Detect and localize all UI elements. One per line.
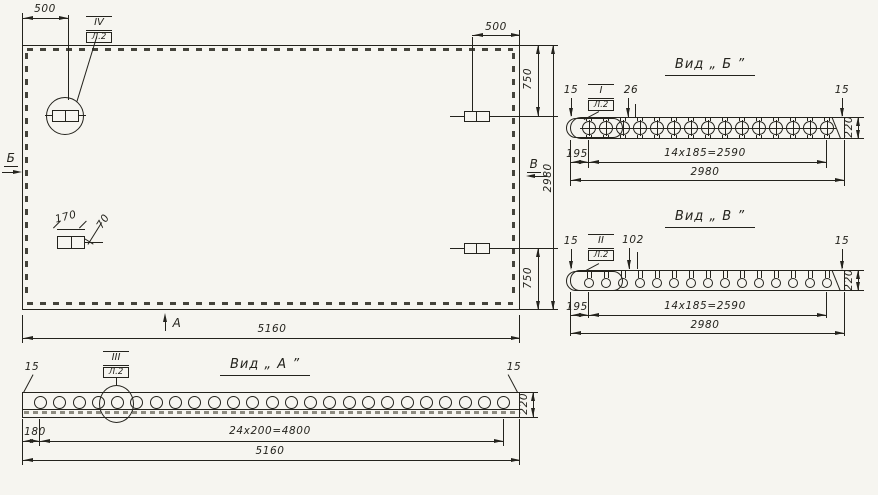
callout-number: III bbox=[103, 351, 129, 366]
hanger-hole bbox=[788, 278, 798, 288]
extension-line bbox=[637, 252, 638, 269]
round-hole bbox=[459, 396, 472, 409]
anchor-hole bbox=[701, 121, 715, 135]
callout-iv: IV Л.2 bbox=[86, 16, 112, 43]
extension-line bbox=[490, 116, 558, 117]
arrowhead bbox=[817, 160, 828, 164]
extension-line bbox=[68, 15, 69, 100]
embed-divider bbox=[71, 236, 72, 249]
dim-label: 2980 bbox=[665, 167, 745, 179]
arrowhead bbox=[59, 16, 70, 20]
drawing-sheet: 500 IV Л.2 500 750 750 2980 Б В А bbox=[0, 0, 878, 495]
view-mark-b: Б bbox=[4, 152, 18, 167]
dim-label: 750 bbox=[523, 258, 535, 298]
round-hole bbox=[53, 396, 66, 409]
panel-edge-key-right bbox=[512, 53, 515, 299]
round-hole bbox=[362, 396, 375, 409]
round-hole bbox=[343, 396, 356, 409]
arrowhead bbox=[626, 108, 630, 117]
hanger-hole bbox=[805, 278, 815, 288]
arrowhead bbox=[511, 33, 522, 37]
extension-line bbox=[472, 37, 473, 112]
dim-line bbox=[538, 45, 539, 116]
round-hole bbox=[381, 396, 394, 409]
dim-label: 195 bbox=[562, 149, 592, 161]
dim-label: 500 bbox=[28, 4, 62, 16]
dim-label: 15 bbox=[504, 362, 524, 374]
hanger-stem bbox=[655, 271, 660, 278]
panel-edge-key-bottom bbox=[27, 302, 513, 305]
hanger-stem bbox=[774, 271, 779, 278]
dim-label: 220 bbox=[519, 384, 531, 424]
extension-line bbox=[635, 104, 636, 117]
dim-label: 2980 bbox=[543, 153, 555, 203]
arrowhead bbox=[835, 331, 846, 335]
arrowhead bbox=[588, 160, 599, 164]
dim-label: 15 bbox=[561, 236, 581, 248]
hanger-hole bbox=[822, 278, 832, 288]
dim-label: 180 bbox=[20, 427, 50, 439]
hanger-hole bbox=[703, 278, 713, 288]
hanger-stem bbox=[791, 271, 796, 278]
hanger-hole bbox=[771, 278, 781, 288]
callout-sheet: Л.2 bbox=[86, 32, 112, 44]
hanger-stem bbox=[638, 271, 643, 278]
dim-label: 5160 bbox=[240, 324, 304, 336]
dim-line bbox=[57, 229, 85, 230]
leader-line bbox=[116, 377, 117, 385]
anchor-hole bbox=[650, 121, 664, 135]
round-hole bbox=[246, 396, 259, 409]
round-hole bbox=[227, 396, 240, 409]
view-v-callout-capsule bbox=[566, 271, 623, 291]
anchor-hole bbox=[820, 121, 834, 135]
dim-label: 220 bbox=[844, 260, 856, 300]
panel-edge-key-top bbox=[27, 48, 513, 51]
arrowhead bbox=[511, 458, 522, 462]
round-hole bbox=[497, 396, 510, 409]
callout-number: IV bbox=[86, 16, 112, 31]
dim-label: 24x200=4800 bbox=[195, 426, 345, 438]
hanger-hole bbox=[669, 278, 679, 288]
hanger-hole bbox=[754, 278, 764, 288]
dim-label: 15 bbox=[561, 85, 581, 97]
arrowhead bbox=[39, 439, 50, 443]
dim-line bbox=[570, 333, 844, 334]
arrowhead bbox=[531, 392, 535, 401]
hanger-stem bbox=[808, 271, 813, 278]
anchor-hole bbox=[633, 121, 647, 135]
arrowhead bbox=[22, 458, 33, 462]
arrowhead bbox=[22, 336, 33, 340]
arrowhead bbox=[551, 301, 555, 310]
round-hole bbox=[34, 396, 47, 409]
view-arrow-head bbox=[13, 170, 24, 174]
dim-line bbox=[570, 315, 826, 316]
arrowhead bbox=[856, 117, 860, 126]
anchor-hole bbox=[667, 121, 681, 135]
strip-inner-line bbox=[23, 409, 519, 410]
anchor-hole bbox=[684, 121, 698, 135]
embed-divider bbox=[65, 110, 66, 122]
embed-whisker bbox=[45, 115, 52, 116]
callout-i: I Л.2 bbox=[588, 84, 614, 111]
view-v-title: Вид „ В ” bbox=[650, 209, 770, 228]
callout-number: II bbox=[588, 234, 614, 249]
arrowhead bbox=[536, 45, 540, 54]
embed-whisker bbox=[79, 115, 86, 116]
dim-label: 102 bbox=[620, 235, 646, 247]
anchor-hole bbox=[735, 121, 749, 135]
arrowhead bbox=[22, 16, 33, 20]
hanger-hole bbox=[720, 278, 730, 288]
hanger-stem bbox=[825, 271, 830, 278]
round-hole bbox=[420, 396, 433, 409]
arrowhead bbox=[472, 33, 483, 37]
callout-iii: III Л.2 bbox=[103, 351, 129, 378]
hanger-hole bbox=[737, 278, 747, 288]
dim-label: 26 bbox=[621, 85, 641, 97]
anchor-hole bbox=[803, 121, 817, 135]
anchor-hole bbox=[752, 121, 766, 135]
arrowhead bbox=[536, 248, 540, 257]
dim-label: 195 bbox=[562, 302, 592, 314]
dim-slash bbox=[507, 374, 517, 392]
dim-label: 14x185=2590 bbox=[640, 148, 770, 160]
extension-line bbox=[490, 248, 558, 249]
round-hole bbox=[323, 396, 336, 409]
panel-outline bbox=[22, 45, 520, 310]
hanger-stem bbox=[672, 271, 677, 278]
callout-ii: II Л.2 bbox=[588, 234, 614, 261]
view-a-callout-oval bbox=[99, 385, 134, 423]
dim-label: 5160 bbox=[235, 446, 305, 458]
hanger-stem bbox=[689, 271, 694, 278]
hanger-stem bbox=[706, 271, 711, 278]
arrowhead bbox=[569, 108, 573, 117]
round-hole bbox=[401, 396, 414, 409]
arrowhead bbox=[570, 331, 581, 335]
round-hole bbox=[188, 396, 201, 409]
arrowhead bbox=[835, 178, 846, 182]
arrowhead bbox=[856, 270, 860, 279]
callout-sheet: Л.2 bbox=[588, 100, 614, 112]
dim-slash bbox=[23, 374, 33, 392]
view-arrow-head bbox=[524, 174, 535, 178]
anchor-hole bbox=[786, 121, 800, 135]
extension-line bbox=[844, 292, 845, 336]
strip-texture bbox=[24, 411, 518, 414]
dim-line bbox=[22, 338, 520, 339]
hanger-stem bbox=[740, 271, 745, 278]
round-hole bbox=[208, 396, 221, 409]
embed-whisker bbox=[450, 116, 464, 117]
arrowhead bbox=[494, 439, 505, 443]
view-mark-v: В bbox=[527, 158, 541, 173]
round-hole bbox=[439, 396, 452, 409]
arrowhead bbox=[536, 107, 540, 116]
round-hole bbox=[169, 396, 182, 409]
hanger-hole bbox=[652, 278, 662, 288]
callout-sheet: Л.2 bbox=[588, 250, 614, 262]
extension-line bbox=[519, 30, 520, 45]
panel-edge-key-left bbox=[25, 53, 28, 299]
dim-line bbox=[570, 180, 844, 181]
round-hole bbox=[304, 396, 317, 409]
dim-label: 15 bbox=[22, 362, 42, 374]
dim-label: 220 bbox=[844, 107, 856, 147]
view-mark-a: А bbox=[170, 317, 184, 330]
arrowhead bbox=[511, 336, 522, 340]
view-b-callout-capsule bbox=[566, 118, 623, 138]
arrowhead bbox=[531, 408, 535, 417]
hanger-stem bbox=[723, 271, 728, 278]
arrowhead bbox=[551, 45, 555, 54]
anchor-hole bbox=[718, 121, 732, 135]
view-arrow-head bbox=[163, 313, 167, 322]
view-a-title: Вид „ А ” bbox=[205, 357, 325, 376]
round-hole bbox=[266, 396, 279, 409]
arrowhead bbox=[588, 313, 599, 317]
hanger-hole bbox=[686, 278, 696, 288]
round-hole bbox=[285, 396, 298, 409]
view-a-strip bbox=[22, 392, 520, 418]
dim-label: 15 bbox=[832, 236, 852, 248]
hanger-hole bbox=[635, 278, 645, 288]
arrowhead bbox=[536, 301, 540, 310]
round-hole bbox=[150, 396, 163, 409]
arrowhead bbox=[570, 178, 581, 182]
hanger-stem bbox=[757, 271, 762, 278]
dim-label: 14x185=2590 bbox=[640, 301, 770, 313]
dim-label: 2980 bbox=[665, 320, 745, 332]
embed-divider bbox=[476, 111, 477, 122]
arrowhead bbox=[569, 261, 573, 270]
arrowhead bbox=[856, 130, 860, 139]
embed-whisker bbox=[450, 248, 464, 249]
embed-divider bbox=[476, 243, 477, 254]
dim-label: 500 bbox=[478, 22, 514, 34]
arrowhead bbox=[856, 282, 860, 291]
anchor-hole bbox=[769, 121, 783, 135]
round-hole bbox=[73, 396, 86, 409]
dim-line bbox=[22, 441, 503, 442]
view-b-title: Вид „ Б ” bbox=[650, 57, 770, 76]
dim-line bbox=[570, 162, 826, 163]
dim-label: 750 bbox=[523, 59, 535, 99]
callout-number: I bbox=[588, 84, 614, 99]
arrowhead bbox=[627, 260, 631, 269]
arrowhead bbox=[817, 313, 828, 317]
round-hole bbox=[478, 396, 491, 409]
dim-label: 15 bbox=[832, 85, 852, 97]
dim-line bbox=[22, 460, 520, 461]
